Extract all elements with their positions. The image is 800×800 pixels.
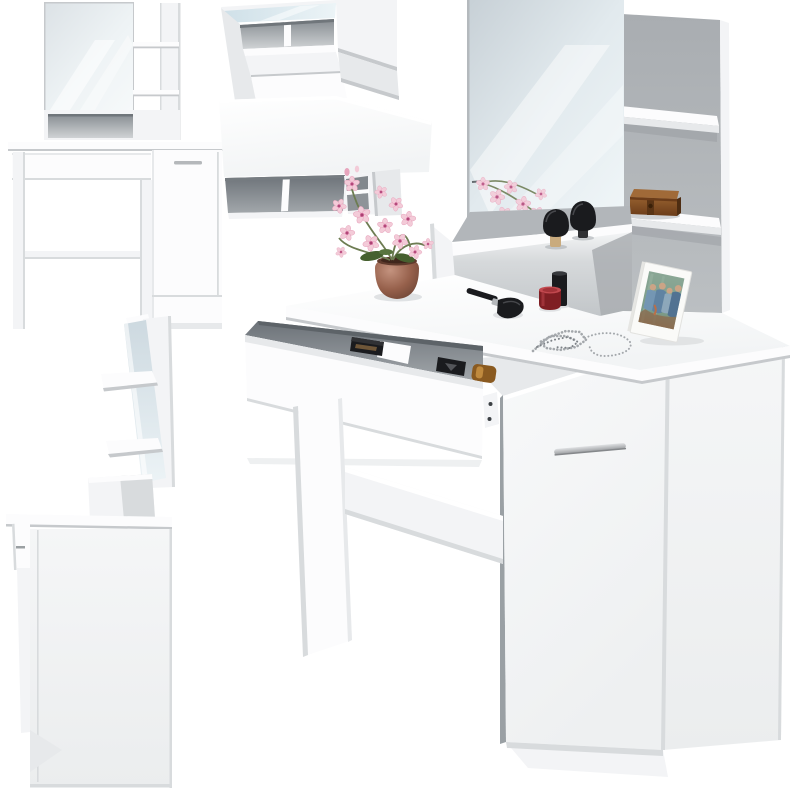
front-door-bottom-edge bbox=[152, 295, 222, 297]
cabinet-side-panel bbox=[663, 344, 785, 750]
drawer-runner bbox=[483, 392, 499, 428]
main-cabinet bbox=[480, 344, 785, 777]
front-shelf-upper bbox=[133, 42, 179, 47]
cabinet-door bbox=[503, 344, 668, 750]
side-shelf-riser bbox=[88, 474, 155, 521]
front-door-handle bbox=[174, 161, 202, 165]
vanity-table-collage bbox=[0, 0, 800, 800]
front-drawer bbox=[12, 153, 151, 180]
side-drawer-edge bbox=[12, 522, 30, 570]
red-cosmetic-jar bbox=[539, 287, 561, 312]
top-riser-compartments bbox=[240, 19, 336, 56]
front-shelf-riser bbox=[44, 110, 180, 141]
front-shelf-lower bbox=[133, 90, 179, 95]
riser-opening bbox=[48, 114, 133, 138]
front-mirror bbox=[44, 2, 134, 111]
main-mirror bbox=[467, 0, 624, 232]
front-tabletop bbox=[8, 140, 231, 151]
terracotta-flower-pot bbox=[374, 257, 422, 302]
product-image-collage bbox=[0, 0, 800, 800]
front-cabinet bbox=[152, 150, 222, 329]
wooden-jewelry-box bbox=[628, 189, 681, 220]
